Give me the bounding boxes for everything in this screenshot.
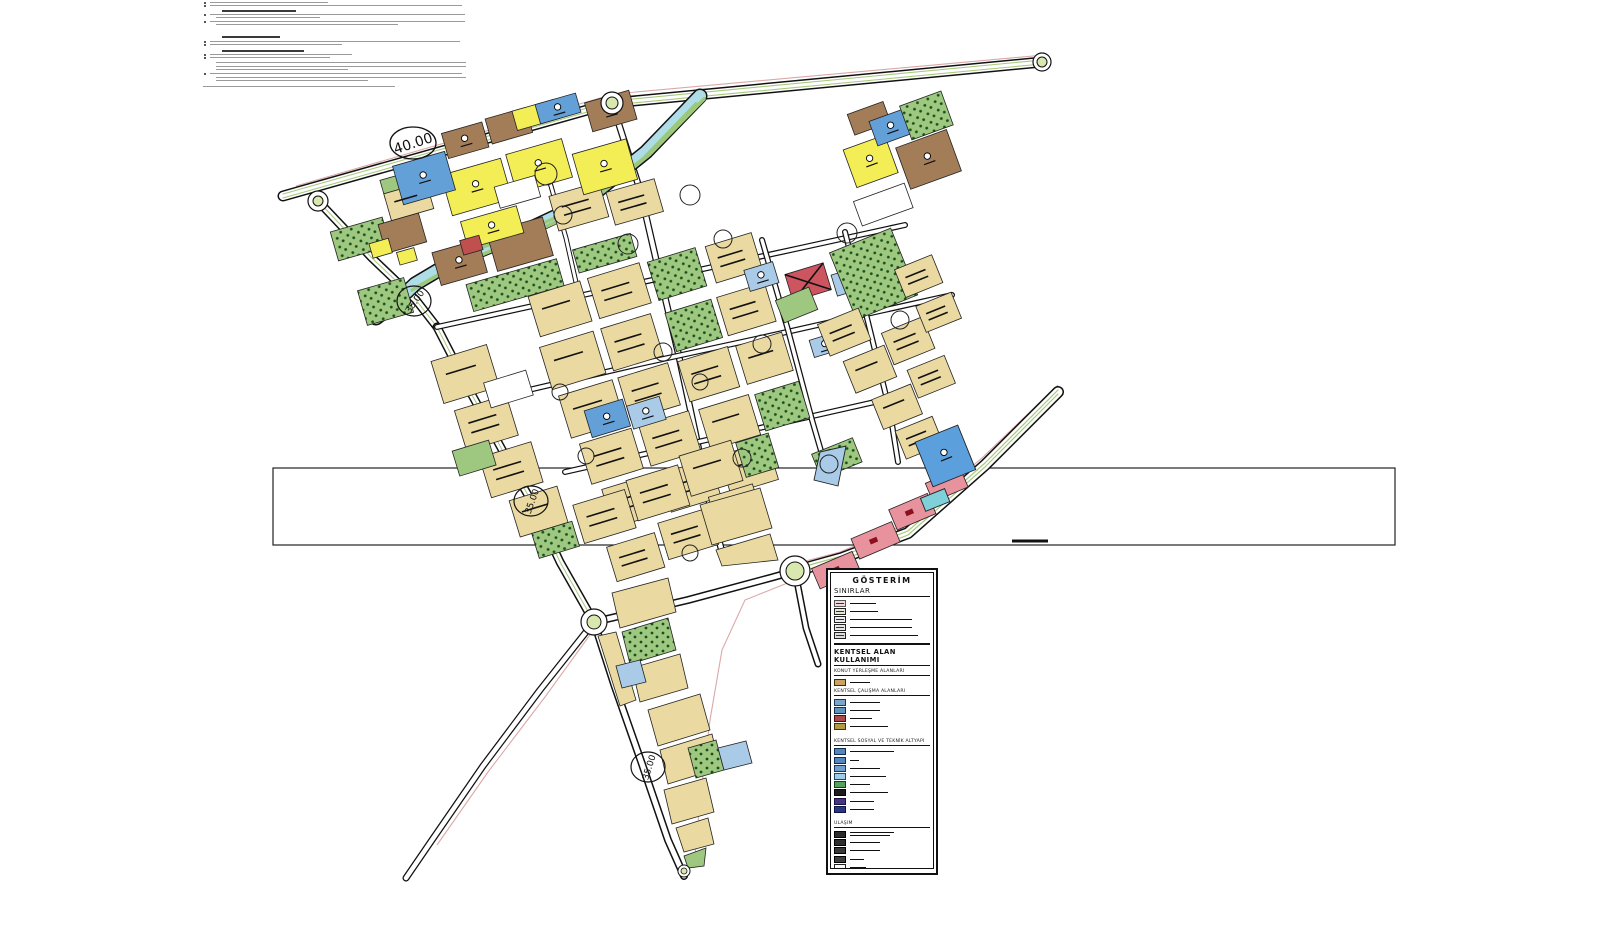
legend-item — [834, 698, 930, 706]
legend-body: SINIRLARKENTSEL ALAN KULLANIMIKONUT YERL… — [834, 587, 930, 869]
legend-swatch — [834, 679, 846, 686]
legend-label-line — [850, 832, 894, 836]
legend-item — [834, 781, 930, 789]
note-line — [216, 77, 466, 78]
legend-item — [834, 847, 930, 855]
legend-swatch — [834, 798, 846, 805]
legend-item — [834, 748, 930, 756]
note-line — [216, 66, 466, 67]
legend-swatch — [834, 773, 846, 780]
legend-inner: GÖSTERİM SINIRLARKENTSEL ALAN KULLANIMIK… — [830, 572, 934, 869]
note-line — [210, 2, 328, 3]
legend-swatch — [834, 624, 846, 631]
legend-swatch — [834, 831, 846, 838]
note-line — [210, 44, 342, 45]
legend-label-line — [850, 682, 870, 683]
legend-label-line — [850, 760, 859, 761]
note-line — [216, 80, 368, 81]
legend-item — [834, 624, 930, 632]
legend-swatch — [834, 757, 846, 764]
note-line — [222, 36, 280, 38]
plan-notes-block — [0, 0, 500, 100]
legend-item — [834, 678, 930, 686]
note-line — [203, 86, 395, 87]
legend-label-line — [850, 710, 880, 711]
legend-swatch — [834, 608, 846, 615]
legend-item — [834, 764, 930, 772]
legend-item — [834, 863, 930, 869]
legend-label-line — [850, 768, 880, 769]
legend-label-line — [850, 635, 918, 636]
legend-label-line — [850, 611, 878, 612]
note-line — [210, 14, 465, 15]
legend-label-line — [850, 842, 880, 843]
note-line — [216, 62, 466, 63]
legend-label-line — [850, 859, 864, 860]
note-line — [216, 17, 320, 18]
legend-item — [834, 839, 930, 847]
legend-title: GÖSTERİM — [834, 576, 930, 585]
legend-swatch — [834, 632, 846, 639]
legend-gap — [834, 813, 930, 818]
note-line — [216, 69, 348, 70]
note-line — [210, 57, 330, 58]
legend-section-title: KONUT YERLEŞME ALANLARI — [834, 669, 930, 674]
legend-item — [834, 706, 930, 714]
legend-box: GÖSTERİM SINIRLARKENTSEL ALAN KULLANIMIK… — [826, 568, 938, 875]
legend-section-title: ULAŞIM — [834, 821, 930, 826]
legend-label-line — [850, 801, 874, 802]
legend-swatch — [834, 723, 846, 730]
legend-item — [834, 615, 930, 623]
legend-label-line — [850, 776, 886, 777]
legend-rule — [834, 745, 930, 746]
note-line — [210, 54, 352, 55]
legend-rule — [834, 695, 930, 696]
legend-label-line — [850, 792, 888, 793]
legend-swatch — [834, 806, 846, 813]
legend-item — [834, 855, 930, 863]
legend-rule — [834, 827, 930, 828]
legend-item — [834, 756, 930, 764]
legend-swatch — [834, 715, 846, 722]
legend-label-line — [850, 627, 912, 628]
note-line — [210, 73, 462, 74]
plan-sheet: 40.00 35.00 35.00 35.00 GÖSTERİM SINIRLA… — [0, 0, 1600, 943]
legend-label-line — [850, 603, 876, 604]
legend-rule — [834, 675, 930, 676]
legend-swatch — [834, 600, 846, 607]
legend-gap — [834, 731, 930, 736]
legend-item — [834, 632, 930, 640]
legend-swatch — [834, 856, 846, 863]
legend-label-line — [850, 784, 870, 785]
legend-rule — [834, 596, 930, 597]
note-line — [210, 5, 462, 6]
legend-swatch — [834, 839, 846, 846]
district-northeast — [825, 82, 975, 226]
legend-swatch — [834, 781, 846, 788]
legend-item — [834, 789, 930, 797]
legend-label-line — [850, 619, 912, 620]
legend-swatch — [834, 699, 846, 706]
legend-item — [834, 723, 930, 731]
legend-label-line — [850, 850, 880, 851]
note-line — [210, 41, 460, 42]
legend-label-line — [850, 751, 894, 752]
legend-swatch — [834, 748, 846, 755]
legend-section-title: KENTSEL SOSYAL VE TEKNİK ALTYAPI — [834, 739, 930, 744]
legend-section-title: SINIRLAR — [834, 587, 930, 595]
legend-rule — [834, 665, 930, 666]
legend-swatch — [834, 864, 846, 869]
legend-swatch — [834, 765, 846, 772]
legend-section-title: KENTSEL ÇALIŞMA ALANLARI — [834, 689, 930, 694]
legend-label-line — [850, 718, 872, 719]
legend-section-title: KENTSEL ALAN KULLANIMI — [834, 643, 930, 664]
legend-swatch — [834, 847, 846, 854]
legend-label-line — [850, 809, 874, 810]
legend-swatch — [834, 789, 846, 796]
legend-item — [834, 805, 930, 813]
legend-label-line — [850, 726, 888, 727]
legend-label-line — [850, 867, 866, 868]
legend-item — [834, 830, 930, 838]
legend-item — [834, 772, 930, 780]
legend-label-line — [850, 702, 880, 703]
note-line — [222, 50, 304, 52]
legend-swatch — [834, 707, 846, 714]
legend-item — [834, 607, 930, 615]
legend-item — [834, 715, 930, 723]
note-line — [216, 24, 398, 25]
legend-swatch — [834, 616, 846, 623]
urban-plan-map: 40.00 35.00 35.00 35.00 — [0, 0, 1600, 943]
note-line — [222, 10, 296, 12]
legend-item — [834, 599, 930, 607]
legend-item — [834, 797, 930, 805]
note-line — [210, 21, 465, 22]
